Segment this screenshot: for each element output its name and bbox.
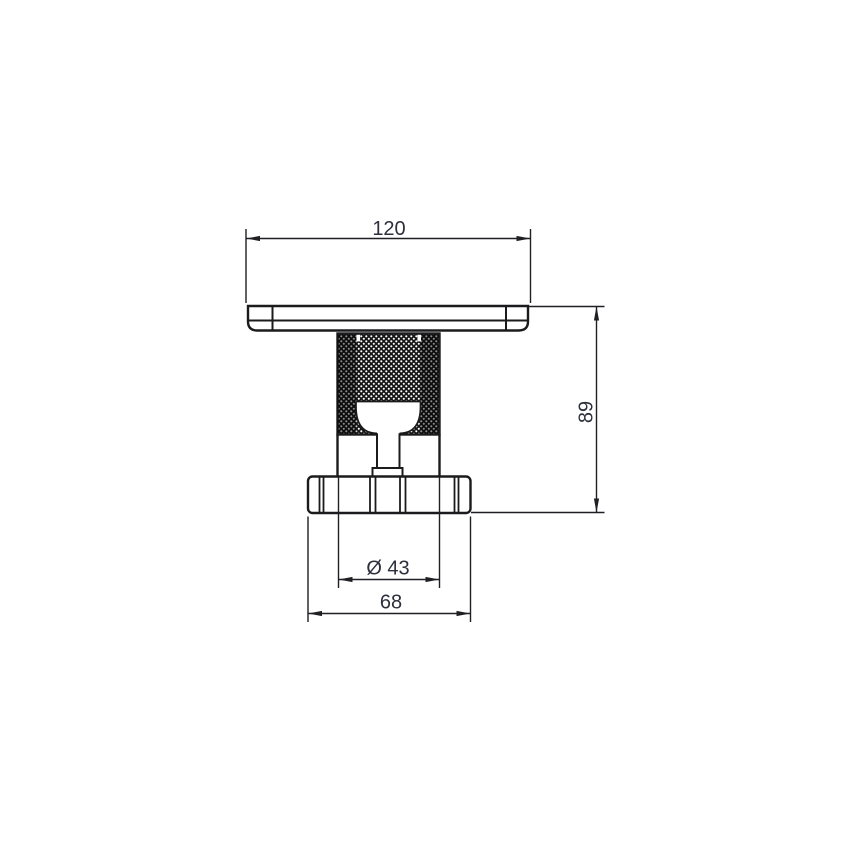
- knurl-right-slit: [417, 335, 421, 342]
- mounting-base: [308, 477, 471, 514]
- dimension-label-knob-diameter: Ø 43: [366, 558, 409, 580]
- knurled-grip: [338, 334, 440, 438]
- dimension-label-base-width: 68: [380, 592, 402, 614]
- faceplate-outline: [248, 306, 528, 331]
- knurl-right-flank-shade: [421, 335, 440, 434]
- dimension-label-overall-width: 120: [372, 218, 405, 240]
- knurl-left-flank-shade: [338, 335, 357, 434]
- technical-drawing: 120 89 Ø 43 68: [0, 0, 850, 850]
- drawing-canvas: 120 89 Ø 43 68: [0, 0, 850, 850]
- knurl-left-slit: [357, 335, 361, 342]
- stem-flange: [373, 468, 403, 477]
- dimension-label-overall-height: 89: [576, 401, 598, 423]
- base-outline: [308, 477, 471, 514]
- faceplate: [248, 306, 528, 331]
